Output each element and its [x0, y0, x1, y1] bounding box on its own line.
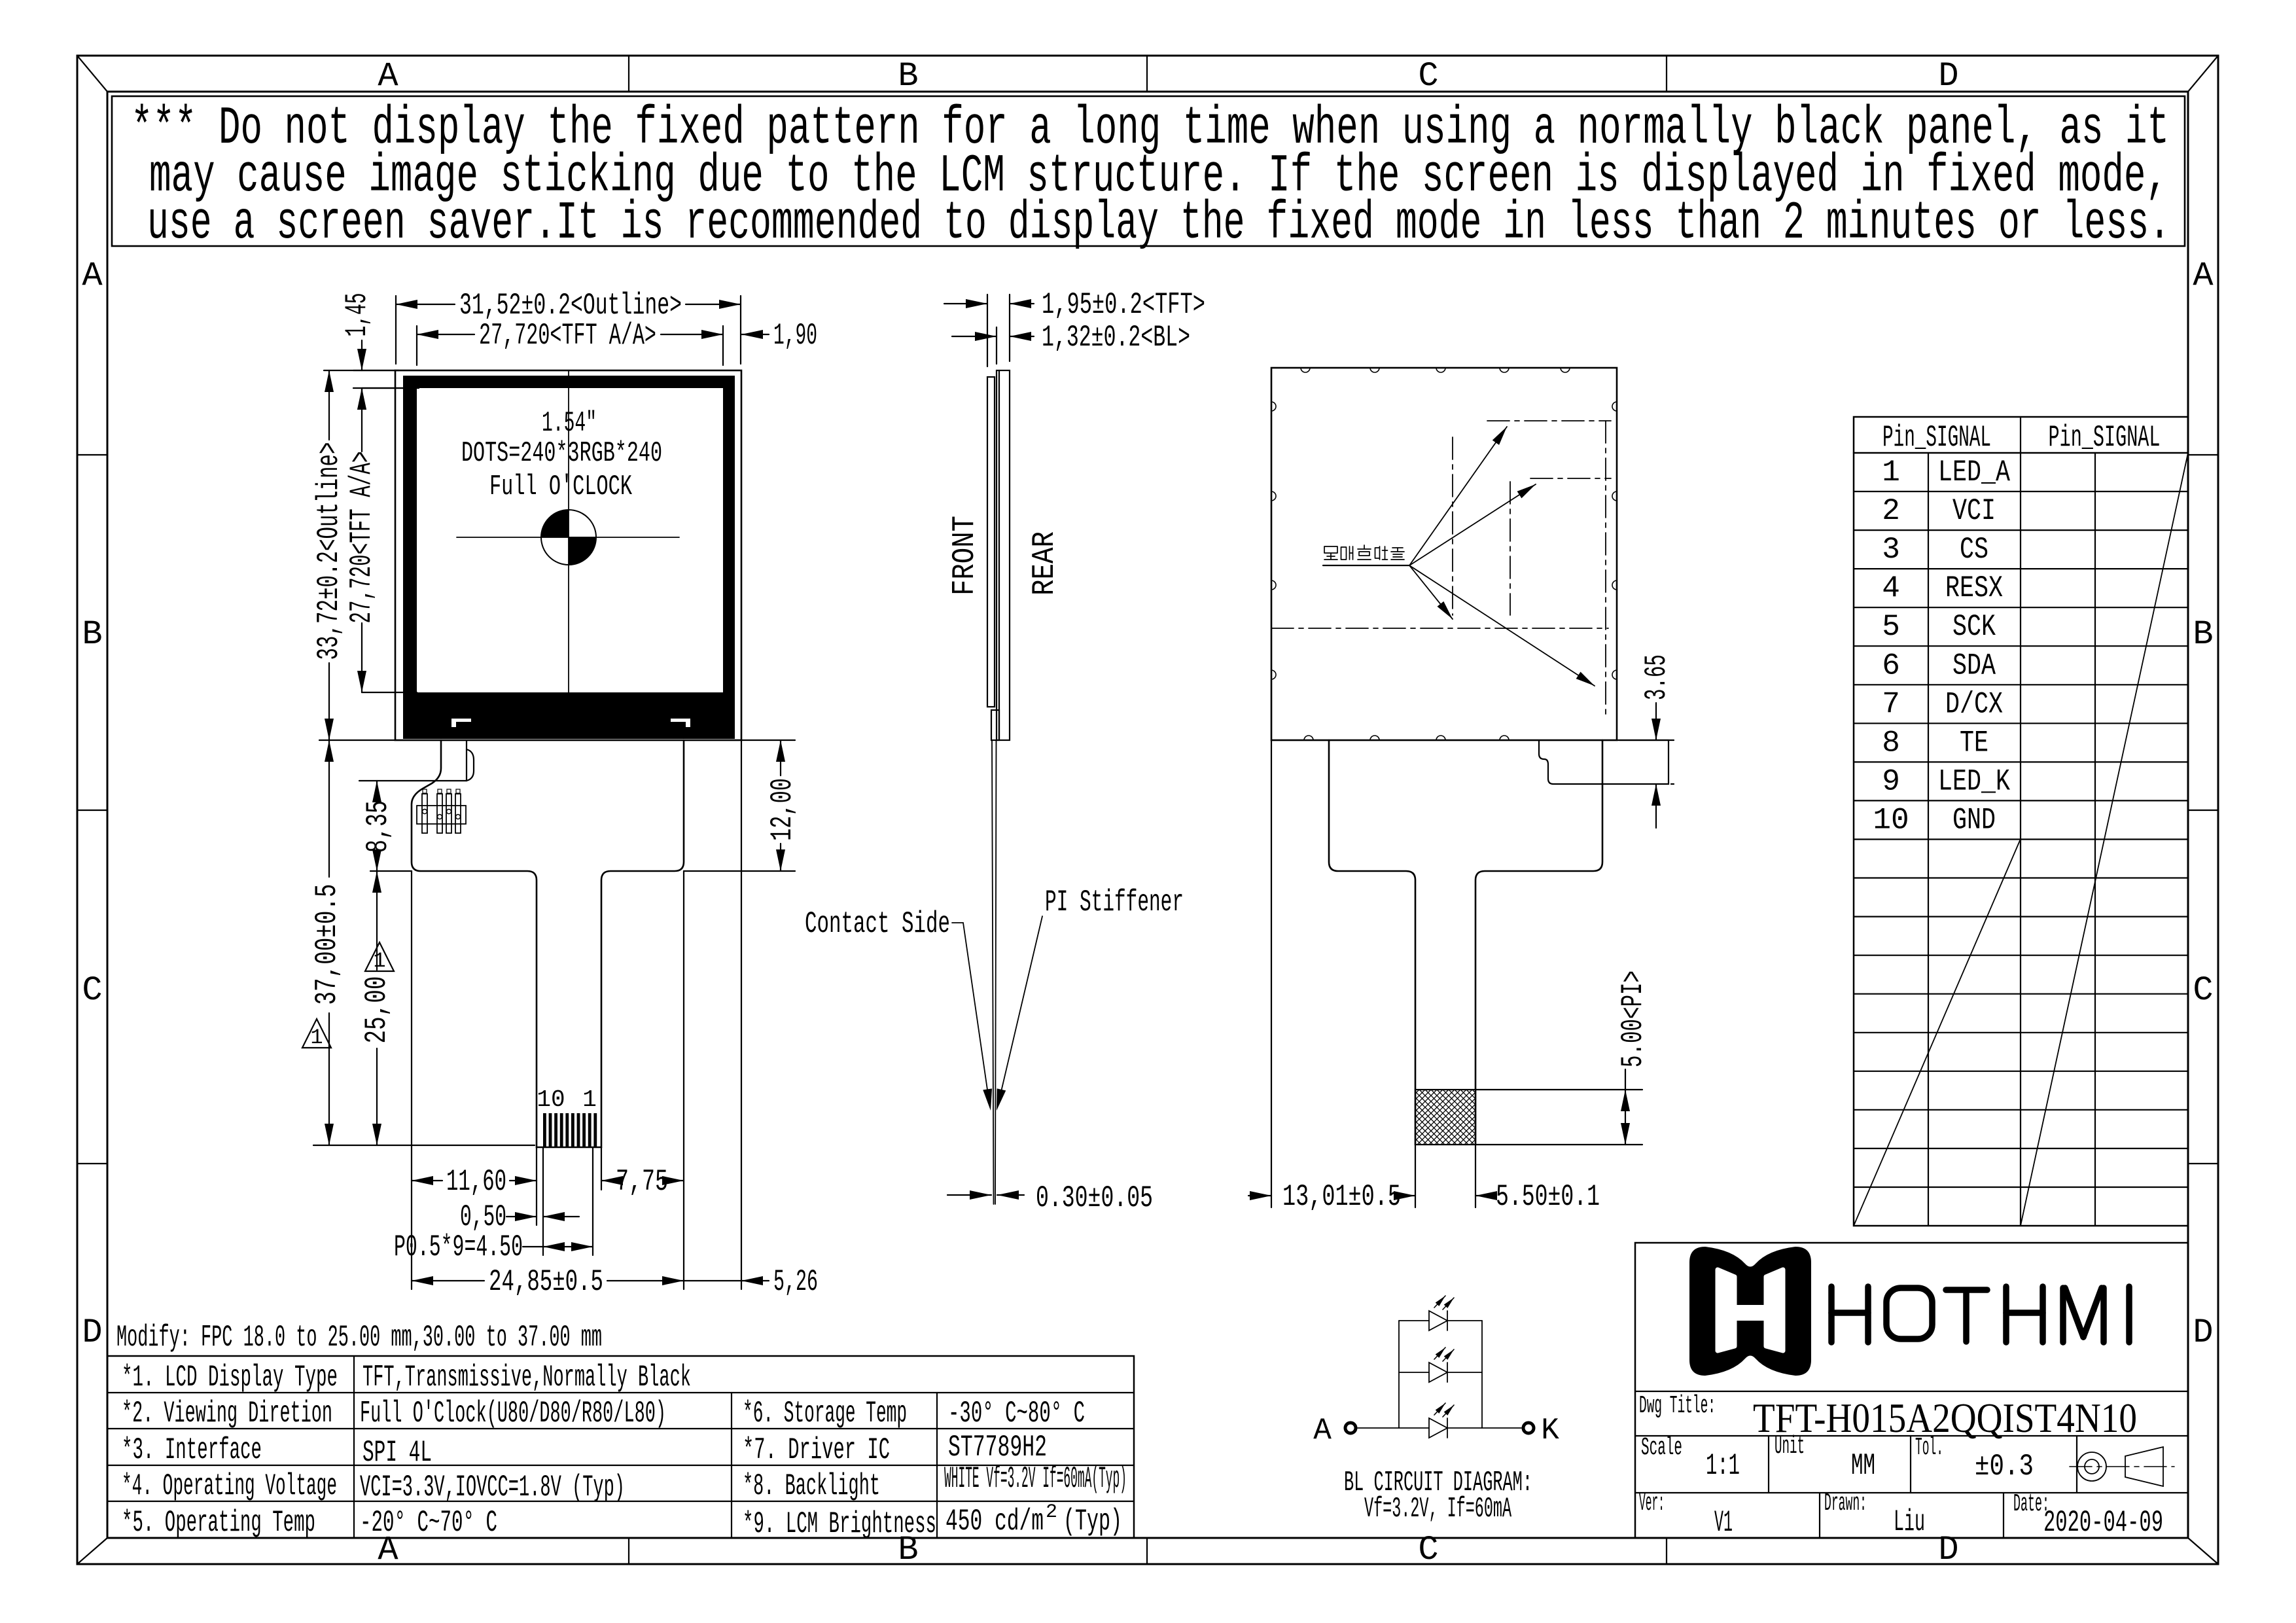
svg-text:1: 1	[582, 1086, 597, 1113]
svg-text:4: 4	[1882, 571, 1900, 605]
svg-text:(Typ): (Typ)	[1063, 1505, 1122, 1539]
svg-text:MM: MM	[1851, 1449, 1875, 1483]
svg-text:25,00: 25,00	[360, 976, 394, 1044]
svg-text:9: 9	[1882, 764, 1900, 798]
svg-text:8: 8	[1882, 726, 1900, 760]
svg-text:Ver:: Ver:	[1639, 1489, 1665, 1518]
svg-text:B: B	[898, 57, 918, 96]
svg-text:TFT,Transmissive,Normally Blac: TFT,Transmissive,Normally Black	[362, 1361, 691, 1395]
svg-text:5.00<PI>: 5.00<PI>	[1616, 971, 1650, 1067]
svg-text:31,52±0.2<Outline>: 31,52±0.2<Outline>	[459, 289, 682, 323]
svg-text:Vf=3.2V, If=60mA: Vf=3.2V, If=60mA	[1364, 1493, 1511, 1525]
svg-text:B: B	[82, 615, 102, 654]
svg-text:2: 2	[1046, 1501, 1057, 1524]
svg-text:GND: GND	[1952, 804, 1996, 838]
svg-text:*6. Storage Temp: *6. Storage Temp	[743, 1397, 907, 1431]
svg-text:TE: TE	[1960, 726, 1988, 760]
svg-text:ST7789H2: ST7789H2	[948, 1431, 1047, 1465]
svg-text:PI Stiffener: PI Stiffener	[1045, 885, 1184, 919]
svg-text:0,50: 0,50	[460, 1200, 506, 1234]
svg-text:CS: CS	[1960, 533, 1988, 567]
svg-text:TFT-H015A2QQIST4N10: TFT-H015A2QQIST4N10	[1753, 1395, 2137, 1441]
svg-text:Tol.: Tol.	[1915, 1434, 1943, 1462]
svg-text:7,75: 7,75	[616, 1165, 668, 1199]
svg-text:3.65: 3.65	[1640, 654, 1674, 700]
svg-text:FRONT: FRONT	[947, 516, 983, 596]
svg-text:Scale: Scale	[1641, 1434, 1682, 1462]
svg-text:11,60: 11,60	[446, 1165, 506, 1199]
svg-text:1,45: 1,45	[340, 293, 374, 337]
svg-text:VCI: VCI	[1952, 494, 1996, 528]
svg-text:Pin_SIGNAL: Pin_SIGNAL	[2049, 421, 2161, 455]
svg-text:±0.3: ±0.3	[1975, 1450, 2034, 1484]
svg-text:5.50±0.1: 5.50±0.1	[1496, 1180, 1600, 1214]
svg-text:1.54": 1.54"	[542, 407, 597, 440]
svg-text:C: C	[82, 971, 102, 1010]
svg-text:1: 1	[310, 1026, 323, 1050]
svg-text:*8. Backlight: *8. Backlight	[743, 1469, 880, 1503]
svg-text:*3. Interface: *3. Interface	[122, 1433, 262, 1467]
svg-text:27,720<TFT A/A>: 27,720<TFT A/A>	[479, 319, 656, 353]
svg-text:K: K	[1541, 1414, 1559, 1448]
svg-text:C: C	[1418, 57, 1438, 96]
svg-text:SCK: SCK	[1952, 610, 1996, 644]
svg-text:A: A	[1313, 1414, 1332, 1448]
svg-text:RESX: RESX	[1945, 571, 2003, 605]
svg-text:*5. Operating Temp: *5. Operating Temp	[122, 1506, 315, 1540]
svg-text:D: D	[1938, 57, 1958, 96]
svg-text:37,00±0.5: 37,00±0.5	[310, 884, 344, 1005]
svg-text:10: 10	[1873, 804, 1909, 838]
svg-text:WHITE Vf=3.2V If=60mA(Typ): WHITE Vf=3.2V If=60mA(Typ)	[944, 1462, 1127, 1496]
svg-text:13,01±0.5: 13,01±0.5	[1282, 1180, 1401, 1214]
svg-text:A: A	[82, 257, 103, 295]
svg-text:*9. LCM Brightness: *9. LCM Brightness	[743, 1507, 936, 1541]
svg-text:*4. Operating Voltage: *4. Operating Voltage	[122, 1469, 337, 1503]
svg-text:use a screen saver.It is recom: use a screen saver.It is recommended to …	[147, 193, 2170, 254]
svg-text:Contact Side: Contact Side	[805, 907, 950, 941]
svg-text:SPI 4L: SPI 4L	[362, 1436, 432, 1470]
svg-text:-30° C~80° C: -30° C~80° C	[948, 1397, 1085, 1431]
svg-text:D: D	[1938, 1531, 1958, 1569]
svg-text:LED_A: LED_A	[1938, 455, 2010, 490]
svg-text:33,72±0.2<Outline>: 33,72±0.2<Outline>	[312, 442, 346, 660]
svg-text:B: B	[2193, 615, 2213, 654]
svg-text:Full O'Clock(U80/D80/R80/L80): Full O'Clock(U80/D80/R80/L80)	[360, 1397, 666, 1431]
svg-text:24,85±0.5: 24,85±0.5	[489, 1265, 603, 1299]
svg-text:10: 10	[537, 1086, 565, 1113]
svg-text:Pin_SIGNAL: Pin_SIGNAL	[1882, 421, 1991, 455]
svg-text:8,35: 8,35	[361, 800, 395, 853]
svg-text:1,95±0.2<TFT>: 1,95±0.2<TFT>	[1042, 288, 1205, 322]
svg-text:*1. LCD Display Type: *1. LCD Display Type	[122, 1361, 338, 1395]
svg-text:LED_K: LED_K	[1938, 764, 2010, 798]
svg-text:A: A	[2193, 257, 2214, 295]
svg-text:3: 3	[1882, 533, 1900, 567]
svg-text:2: 2	[1882, 494, 1900, 528]
svg-text:V1: V1	[1714, 1506, 1733, 1540]
svg-text:Drawn:: Drawn:	[1824, 1489, 1867, 1518]
svg-text:D/CX: D/CX	[1945, 687, 2003, 721]
svg-text:1: 1	[373, 949, 385, 973]
svg-text:D: D	[2193, 1313, 2213, 1352]
svg-text:1: 1	[1882, 455, 1900, 490]
svg-text:DOTS=240*3RGB*240: DOTS=240*3RGB*240	[461, 437, 662, 470]
svg-text:*7. Driver IC: *7. Driver IC	[743, 1433, 890, 1467]
svg-text:1,90: 1,90	[773, 319, 817, 353]
svg-text:C: C	[1418, 1531, 1438, 1569]
svg-text:VCI=3.3V,IOVCC=1.8V (Typ): VCI=3.3V,IOVCC=1.8V (Typ)	[360, 1471, 625, 1505]
svg-text:P0.5*9=4.50: P0.5*9=4.50	[394, 1230, 523, 1264]
svg-text:Full O'CLOCK: Full O'CLOCK	[489, 471, 632, 503]
svg-text:12,00: 12,00	[766, 778, 800, 841]
svg-text:5,26: 5,26	[773, 1265, 818, 1299]
svg-text:27,720<TFT A/A>: 27,720<TFT A/A>	[345, 452, 379, 624]
svg-text:-20° C~70° C: -20° C~70° C	[360, 1506, 497, 1540]
svg-text:C: C	[2193, 971, 2213, 1010]
svg-text:A: A	[378, 57, 398, 96]
svg-text:Dwg Title:: Dwg Title:	[1639, 1392, 1716, 1420]
svg-text:Liu: Liu	[1894, 1505, 1925, 1539]
svg-text:REAR: REAR	[1027, 531, 1063, 596]
svg-text:1,32±0.2<BL>: 1,32±0.2<BL>	[1042, 321, 1190, 355]
svg-text:5: 5	[1882, 610, 1900, 644]
svg-text:Unit: Unit	[1775, 1433, 1805, 1461]
svg-text:2020-04-09: 2020-04-09	[2043, 1506, 2163, 1540]
svg-text:SDA: SDA	[1952, 649, 1996, 683]
svg-text:0.30±0.05: 0.30±0.05	[1036, 1181, 1153, 1215]
svg-text:450 cd/m: 450 cd/m	[945, 1505, 1044, 1539]
svg-text:6: 6	[1882, 649, 1900, 683]
svg-text:7: 7	[1882, 687, 1900, 721]
svg-text:Modify: FPC 18.0 to 25.00 mm,3: Modify: FPC 18.0 to 25.00 mm,30.00 to 37…	[116, 1321, 602, 1355]
svg-text:1:1: 1:1	[1706, 1449, 1740, 1483]
svg-text:*2. Viewing Diretion: *2. Viewing Diretion	[122, 1397, 332, 1431]
svg-text:D: D	[82, 1313, 102, 1352]
